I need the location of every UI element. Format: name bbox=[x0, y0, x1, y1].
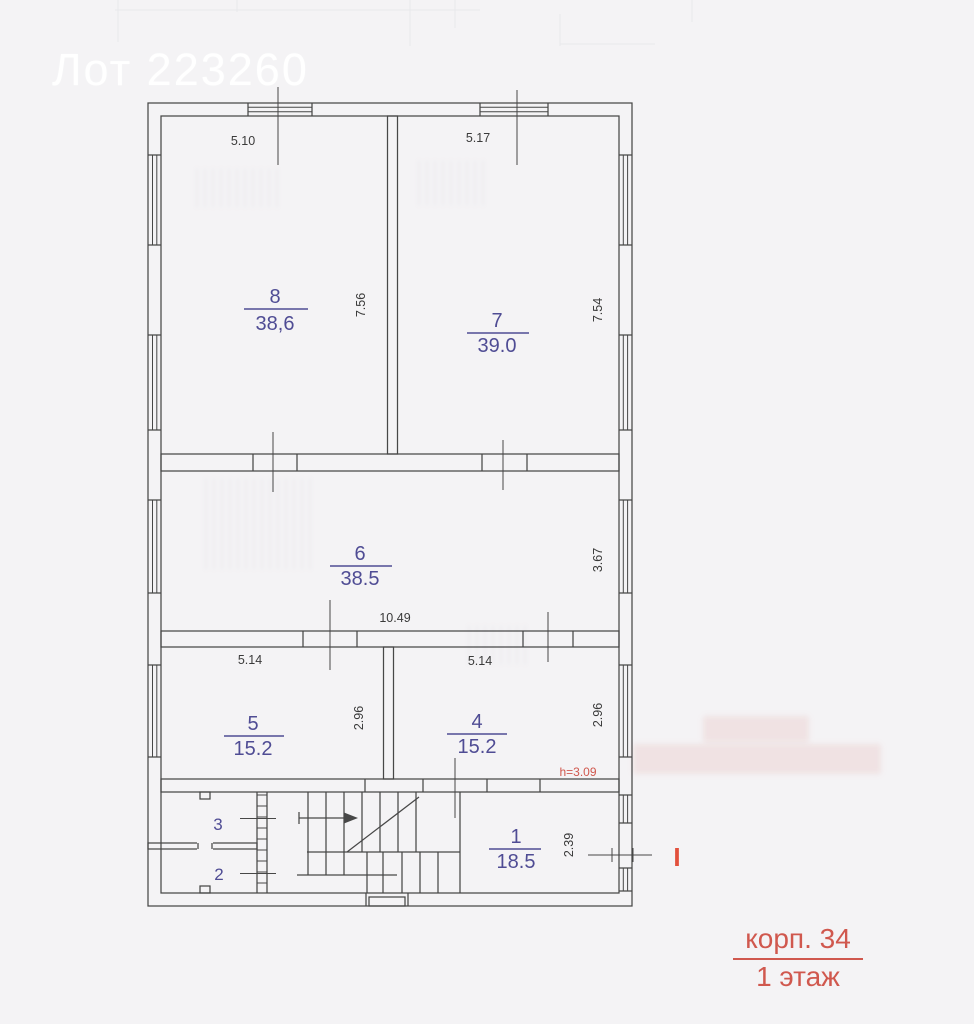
title-block: корп. 34 1 этаж bbox=[718, 924, 878, 993]
svg-text:7: 7 bbox=[491, 310, 502, 332]
dim-top-left: 5.10 bbox=[231, 134, 255, 148]
dim-room1-depth: 2.39 bbox=[562, 833, 576, 857]
building-label: корп. 34 bbox=[733, 924, 863, 960]
svg-text:18.5: 18.5 bbox=[497, 851, 536, 873]
floorplan-drawing: 5.10 5.17 7.56 7.54 3.67 10.49 5.14 5.14… bbox=[0, 0, 974, 1024]
room-label-4: 4 15.2 bbox=[447, 711, 507, 758]
entrance-threshold bbox=[366, 893, 408, 906]
floorplan-page: Лот 223260 bbox=[0, 0, 974, 1024]
dimension-ticks bbox=[273, 87, 548, 818]
dim-left-upper: 7.56 bbox=[354, 293, 368, 317]
dim-lower-left: 2.96 bbox=[352, 706, 366, 730]
svg-text:39.0: 39.0 bbox=[478, 335, 517, 357]
svg-text:38,6: 38,6 bbox=[256, 313, 295, 335]
svg-text:38.5: 38.5 bbox=[341, 568, 380, 590]
section-mark: I bbox=[673, 842, 680, 872]
floor-label: 1 этаж bbox=[718, 962, 878, 993]
window-glyphs-top-wall bbox=[248, 103, 548, 116]
dim-mid-left: 5.14 bbox=[238, 653, 262, 667]
section-leader bbox=[588, 848, 652, 862]
room-label-5: 5 15.2 bbox=[224, 713, 284, 760]
dimension-labels: 5.10 5.17 7.56 7.54 3.67 10.49 5.14 5.14… bbox=[231, 131, 605, 857]
interior-walls bbox=[161, 116, 619, 792]
outer-walls bbox=[148, 103, 632, 906]
bleedthrough-lines bbox=[115, 0, 692, 46]
dim-mid-width: 10.49 bbox=[379, 611, 410, 625]
svg-text:5: 5 bbox=[247, 713, 258, 735]
dim-top-right: 5.17 bbox=[466, 131, 490, 145]
room-label-7: 7 39.0 bbox=[467, 310, 529, 357]
dim-lower-right: 2.96 bbox=[591, 703, 605, 727]
dim-right-upper: 7.54 bbox=[591, 298, 605, 322]
svg-text:1: 1 bbox=[510, 826, 521, 848]
window-glyphs-right-wall bbox=[619, 155, 632, 891]
svg-text:4: 4 bbox=[471, 711, 482, 733]
room-label-3: 3 bbox=[213, 815, 222, 834]
window-glyphs-left-wall bbox=[148, 155, 161, 757]
svg-text:15.2: 15.2 bbox=[234, 738, 273, 760]
svg-text:6: 6 bbox=[354, 543, 365, 565]
svg-text:8: 8 bbox=[269, 286, 280, 308]
staircase bbox=[297, 792, 460, 893]
room-label-1: 1 18.5 bbox=[489, 826, 541, 873]
room-label-6: 6 38.5 bbox=[330, 543, 392, 590]
dim-mid-right: 5.14 bbox=[468, 654, 492, 668]
dim-right-mid: 3.67 bbox=[591, 548, 605, 572]
room-label-8: 8 38,6 bbox=[244, 286, 308, 335]
room-label-2: 2 bbox=[214, 865, 223, 884]
room-labels: 8 38,6 7 39.0 6 38.5 5 15.2 4 bbox=[213, 286, 541, 884]
ladder-shaft bbox=[257, 792, 267, 893]
ceiling-height-note: h=3.09 bbox=[559, 765, 596, 779]
svg-text:15.2: 15.2 bbox=[458, 736, 497, 758]
